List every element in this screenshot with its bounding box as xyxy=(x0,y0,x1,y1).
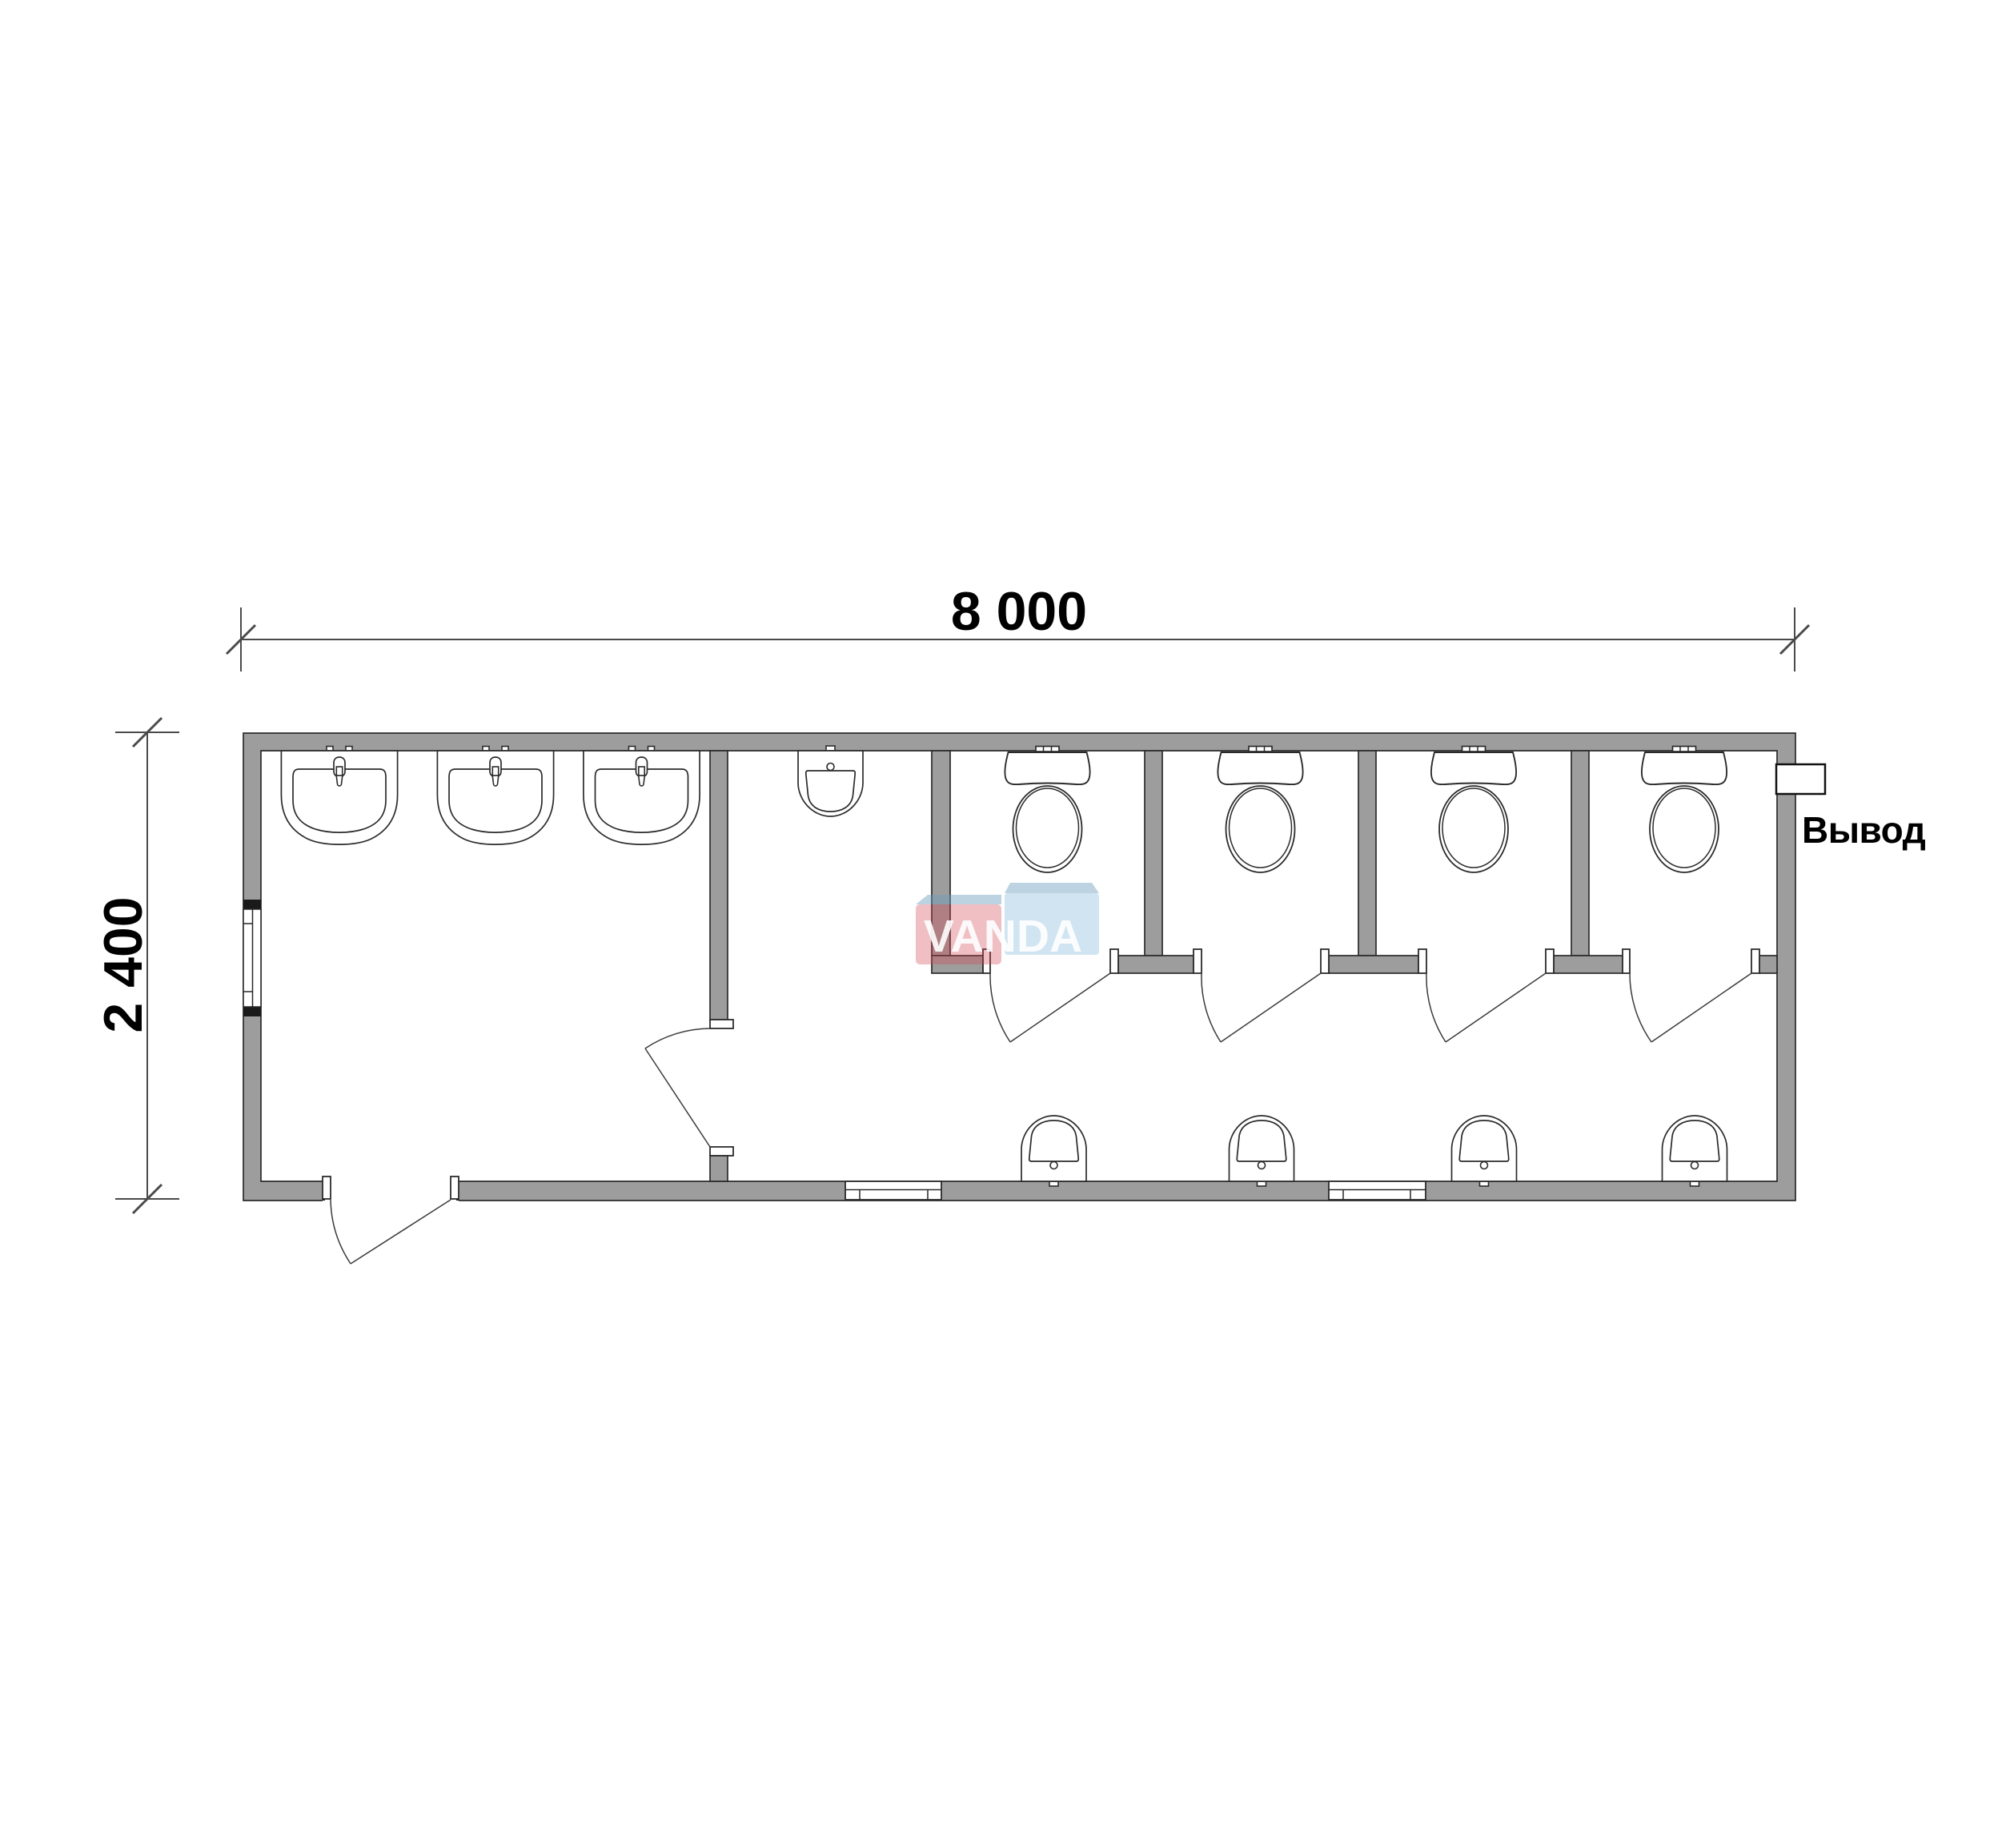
svg-text:Вывод: Вывод xyxy=(1802,809,1926,851)
svg-text:VANDA: VANDA xyxy=(924,911,1082,962)
svg-text:8 000: 8 000 xyxy=(951,581,1087,642)
svg-text:2 400: 2 400 xyxy=(93,896,154,1032)
